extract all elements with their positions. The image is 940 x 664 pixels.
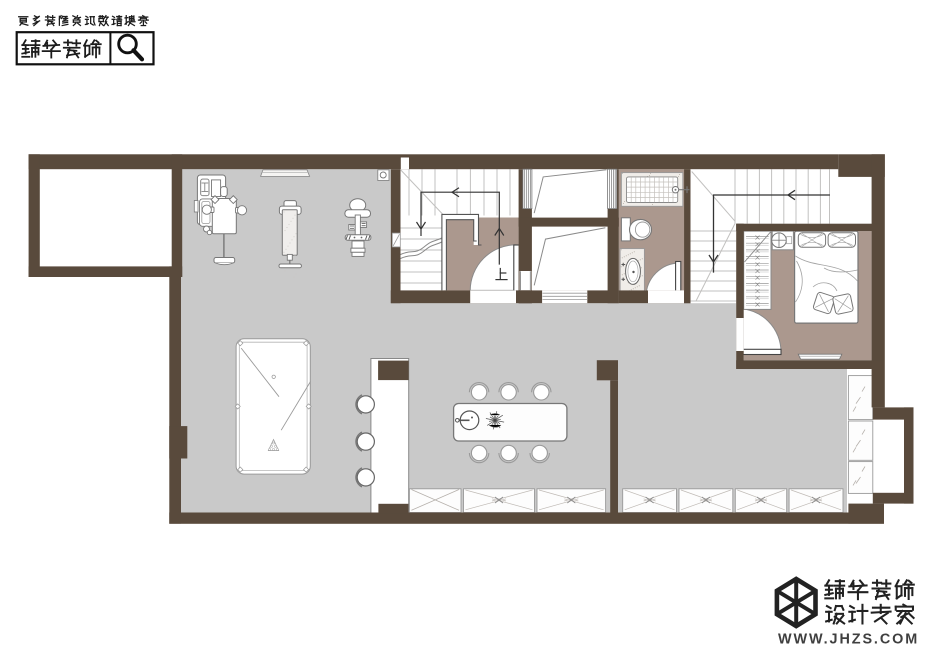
svg-text:WWW.JHZS.COM: WWW.JHZS.COM (778, 632, 919, 648)
